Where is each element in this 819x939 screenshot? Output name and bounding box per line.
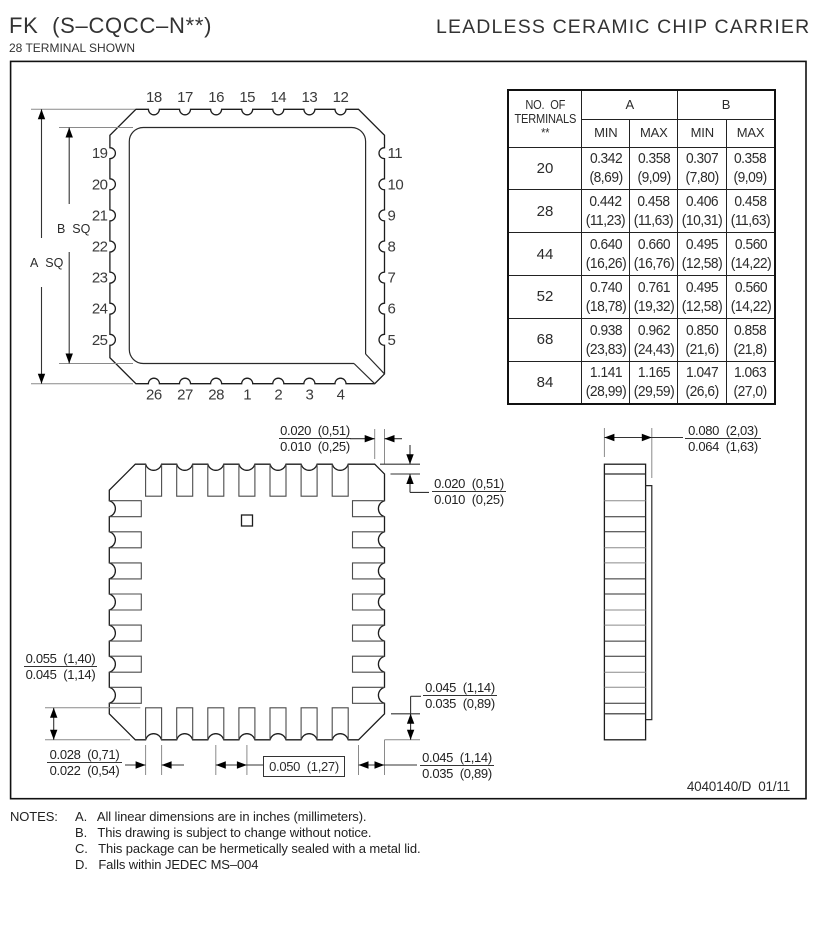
svg-text:21: 21 [92, 207, 108, 224]
svg-text:16: 16 [208, 89, 224, 106]
svg-text:3: 3 [305, 387, 313, 404]
svg-text:6: 6 [388, 301, 396, 318]
svg-text:10: 10 [388, 176, 404, 193]
svg-text:20: 20 [92, 176, 108, 193]
svg-text:25: 25 [92, 332, 108, 349]
svg-text:28: 28 [208, 387, 224, 404]
svg-text:23: 23 [92, 270, 108, 287]
svg-text:17: 17 [177, 89, 193, 106]
svg-text:27: 27 [177, 387, 193, 404]
svg-text:7: 7 [388, 270, 396, 287]
svg-text:13: 13 [302, 89, 318, 106]
svg-text:1: 1 [243, 387, 251, 404]
svg-text:19: 19 [92, 145, 108, 162]
svg-text:2: 2 [274, 387, 282, 404]
svg-text:24: 24 [92, 301, 108, 318]
svg-text:14: 14 [270, 89, 286, 106]
svg-text:9: 9 [388, 207, 396, 224]
svg-text:8: 8 [388, 239, 396, 256]
svg-text:18: 18 [146, 89, 162, 106]
svg-text:12: 12 [333, 89, 349, 106]
svg-text:4: 4 [337, 387, 345, 404]
svg-text:15: 15 [239, 89, 255, 106]
svg-text:22: 22 [92, 239, 108, 256]
svg-text:11: 11 [388, 145, 403, 162]
svg-text:5: 5 [388, 332, 396, 349]
svg-text:26: 26 [146, 387, 162, 404]
